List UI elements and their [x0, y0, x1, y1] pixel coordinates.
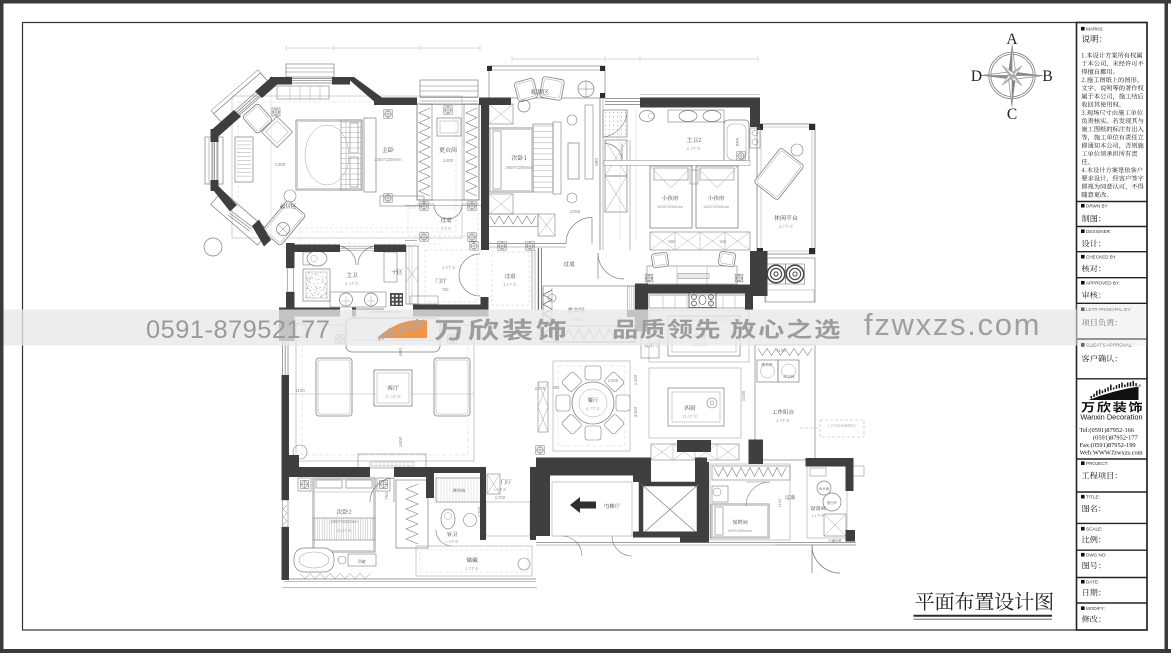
svg-text:900*2000mm: 900*2000mm [728, 528, 752, 533]
svg-text:1400: 1400 [608, 378, 619, 384]
svg-text:Web:WWW.fzwxzs.com: Web:WWW.fzwxzs.com [1080, 450, 1143, 457]
svg-text:600: 600 [398, 348, 404, 356]
svg-text:PROJECT:: PROJECT: [1086, 461, 1108, 466]
svg-text:750: 750 [442, 287, 450, 292]
svg-text:DRWN BY: DRWN BY [1086, 204, 1108, 209]
svg-text:Wanxin Decoration: Wanxin Decoration [1080, 413, 1142, 422]
svg-text:C: C [1007, 106, 1017, 123]
svg-text:1255: 1255 [570, 209, 581, 215]
svg-text:945: 945 [720, 239, 728, 244]
svg-text:TITLE:: TITLE: [1086, 495, 1100, 500]
svg-text:(0591)87952-177: (0591)87952-177 [1093, 435, 1139, 442]
svg-text:MODIFY:: MODIFY: [1086, 606, 1105, 611]
svg-text:1600: 1600 [398, 436, 404, 447]
svg-text:DESIGNER:: DESIGNER: [1086, 229, 1111, 234]
svg-text:980: 980 [594, 158, 600, 166]
svg-text:SPA: SPA [735, 138, 740, 147]
svg-text:D: D [971, 68, 982, 85]
svg-text:1200*2200mm: 1200*2200mm [657, 204, 684, 209]
svg-text:0591-87952177: 0591-87952177 [146, 316, 330, 344]
svg-text:®: ® [1139, 384, 1142, 388]
svg-text:B: B [1042, 68, 1052, 85]
svg-text:1200*2200mm: 1200*2200mm [703, 204, 730, 209]
svg-text:A: A [1006, 31, 1018, 48]
svg-text:2000*2200mm: 2000*2200mm [330, 519, 358, 524]
svg-text:fzwxzs.com: fzwxzs.com [864, 307, 1041, 342]
svg-text:1700: 1700 [495, 495, 506, 501]
svg-text:DATE:: DATE: [1086, 580, 1099, 585]
svg-text:750: 750 [384, 492, 390, 500]
svg-text:2280*2200mm: 2280*2200mm [374, 157, 402, 162]
svg-text:1120: 1120 [295, 388, 305, 393]
svg-text:Fax:(0591)87952-199: Fax:(0591)87952-199 [1080, 442, 1136, 449]
svg-text:Tel:(0591)87952-166: Tel:(0591)87952-166 [1080, 427, 1135, 434]
svg-text:SCALE:: SCALE: [1086, 527, 1102, 532]
svg-text:APPROVED BY:: APPROVED BY: [1086, 281, 1120, 286]
svg-text:1400: 1400 [633, 374, 639, 385]
svg-text:CHECKED BY: CHECKED BY [1086, 255, 1116, 260]
svg-text:2900*2200mm: 2900*2200mm [505, 165, 533, 170]
svg-text:550: 550 [669, 239, 677, 244]
svg-text:1100: 1100 [776, 348, 786, 353]
svg-text:1100: 1100 [777, 498, 782, 507]
svg-text:980: 980 [553, 385, 561, 390]
svg-text:1400: 1400 [443, 158, 454, 164]
svg-text:MARKS:: MARKS: [1086, 27, 1104, 32]
svg-text:1300: 1300 [275, 162, 286, 168]
svg-text:DWG NO:: DWG NO: [1086, 553, 1107, 558]
svg-text:1035: 1035 [741, 390, 747, 401]
svg-text:3400: 3400 [633, 406, 639, 417]
